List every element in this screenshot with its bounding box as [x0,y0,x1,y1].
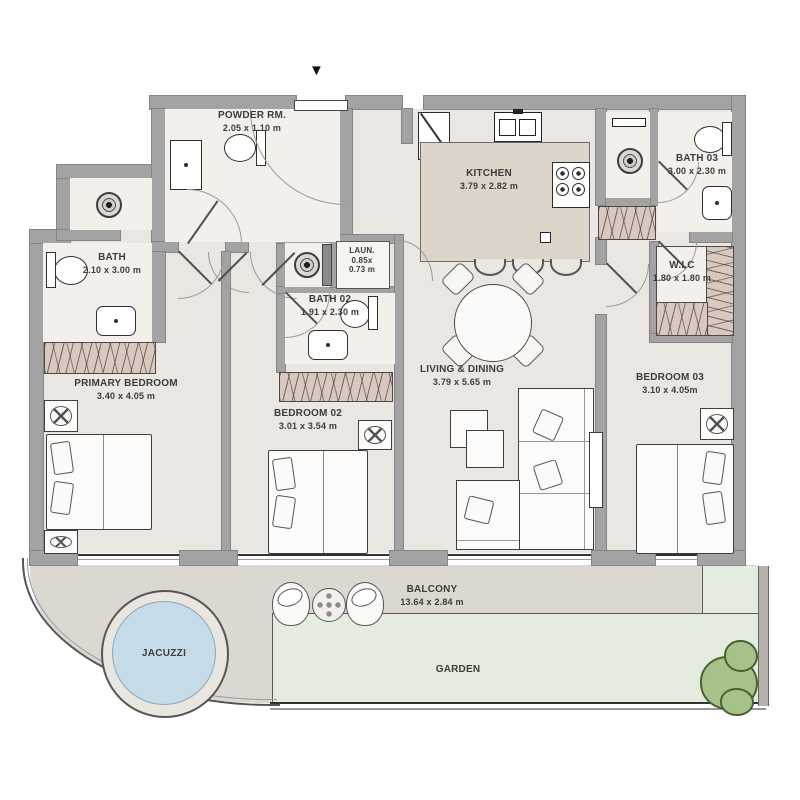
wall-divider-primary-bed02 [222,252,230,553]
label-powder-name: POWDER RM. [218,110,286,123]
outdoor-chair [272,582,310,626]
island-outlet [540,232,551,243]
label-wic-name: W.I.C [653,260,711,273]
sofa-back-line [584,389,585,549]
kitchen-sink-basin [499,119,516,136]
label-laundry: LAUN. 0.85x 0.73 m [349,246,375,275]
nightstand [44,400,78,432]
label-living: LIVING & DINING 3.79 x 5.65 m [420,364,504,388]
coffee-table [466,430,504,468]
toilet-bath03-tank [722,122,732,156]
powder-vanity [170,140,202,190]
label-garden-name: GARDEN [436,664,481,677]
wall-kitchen-left-stub [402,109,412,143]
chair-cushion [349,585,379,610]
wall-powder-left [152,109,165,252]
sofa-seam [519,441,593,442]
label-bath03: BATH 03 3.00 x 2.30 m [668,153,726,177]
chair-cushion [275,585,305,610]
wall-top-mid [346,96,402,109]
floor-plan: JACUZZI ▼ POWDER RM. 2.05 x 1.10 m KITCH… [0,0,800,800]
sink-bath02 [308,330,348,360]
garden-bush-top [724,640,758,672]
wardrobe-bedroom02 [279,372,393,402]
nightstand [358,420,392,450]
label-laundry-dims2: 0.73 m [349,265,375,275]
label-bath: BATH 2.10 x 3.00 m [83,252,141,276]
kitchen-faucet [513,109,523,114]
bed-seam [323,451,324,553]
wall-corridor-b [596,238,606,264]
wardrobe-wic-bottom [656,302,708,336]
label-kitchen-name: KITCHEN [460,168,518,181]
shower-drain-02 [294,252,320,278]
sofa-back-line [457,540,519,541]
toilet-primary-tank [46,252,56,288]
garden-bush-bottom [720,688,754,716]
bed-seam [677,445,678,553]
label-wic: W.I.C 1.80 x 1.80 m [653,260,711,284]
sink-dot [715,201,719,205]
label-balcony: BALCONY 13.64 x 2.84 m [400,584,463,608]
label-powder-dims: 2.05 x 1.10 m [218,123,286,134]
label-living-name: LIVING & DINING [420,364,504,377]
wall-left-upper-h [57,165,165,178]
label-powder: POWDER RM. 2.05 x 1.10 m [218,110,286,134]
jacuzzi-water: JACUZZI [112,601,216,705]
label-primary: PRIMARY BEDROOM 3.40 x 4.05 m [74,378,178,402]
burner [556,183,569,196]
label-bath03-dims: 3.00 x 2.30 m [668,166,726,177]
bed-pillow [50,441,74,475]
label-bedroom03-name: BEDROOM 03 [636,372,704,385]
wall-left-main [30,230,43,565]
entrance-arrow-icon: ▼ [309,62,324,79]
sofa-seam [519,493,593,494]
shower-drain-03 [617,148,643,174]
toilet-powder [224,134,256,162]
shower03-head [612,118,646,127]
wall-shower03-right [650,109,658,205]
kitchen-sink [494,112,542,142]
label-wic-dims: 1.80 x 1.80 m [653,273,711,284]
sink-bath03 [702,186,732,220]
toilet-bath02-tank [368,296,378,330]
outdoor-table [312,588,346,622]
outdoor-chair [346,582,384,626]
cross-circle-icon [706,414,728,434]
sink-dot [326,343,330,347]
stove [552,162,590,208]
label-bath-dims: 2.10 x 3.00 m [83,265,141,276]
label-kitchen-dims: 3.79 x 2.82 m [460,181,518,192]
bed-pillow [702,491,726,525]
label-bath-name: BATH [83,252,141,265]
wall-bath-right [152,252,165,342]
wall-corridor-a [596,109,606,205]
jacuzzi-label: JACUZZI [142,648,186,659]
garden-railing-right [758,566,769,706]
wall-shower03-bottom [606,198,650,206]
label-bath02-dims: 1.91 x 2.30 m [301,307,359,318]
label-balcony-dims: 13.64 x 2.84 m [400,597,463,608]
label-bedroom02-name: BEDROOM 02 [274,408,342,421]
nightstand [700,408,734,440]
label-bedroom02-dims: 3.01 x 3.54 m [274,421,342,432]
burner [572,167,585,180]
garden-area-step [702,566,759,613]
label-bedroom02: BEDROOM 02 3.01 x 3.54 m [274,408,342,432]
wardrobe-bedroom03 [598,206,656,240]
label-laundry-name: LAUN. [349,246,375,256]
garden-area [272,613,759,703]
label-laundry-dims1: 0.85x [349,256,375,266]
label-bedroom03-dims: 3.10 x 4.05m [636,385,704,396]
kitchen-sink-basin [519,119,536,136]
wardrobe-primary [44,342,156,374]
sink-primary [96,306,136,336]
burner [556,167,569,180]
label-balcony-name: BALCONY [400,584,463,597]
bed-seam [103,435,104,529]
label-garden: GARDEN [436,664,481,677]
wall-shower-bottom [57,230,120,240]
wall-top-right [424,96,745,109]
cross-circle-icon [50,406,72,426]
label-bath02: BATH 02 1.91 x 2.30 m [301,294,359,318]
cross-circle-icon [50,536,72,548]
label-kitchen: KITCHEN 3.79 x 2.82 m [460,168,518,192]
label-bedroom03: BEDROOM 03 3.10 x 4.05m [636,372,704,396]
garden-railing-bottom-2 [270,708,766,710]
wall-top-powder [150,96,296,109]
nightstand [44,530,78,554]
wall-hall-bottom-a [152,242,178,252]
label-primary-name: PRIMARY BEDROOM [74,378,178,391]
wall-bath03-bottom [690,232,732,242]
dining-table [454,284,532,362]
sink-dot [114,319,118,323]
pillar-2 [180,551,237,565]
bed-pillow [272,457,296,491]
label-living-dims: 3.79 x 5.65 m [420,377,504,388]
label-primary-dims: 3.40 x 4.05 m [74,391,178,402]
vanity-dot [184,163,188,167]
label-bath02-name: BATH 02 [301,294,359,307]
wall-divider-bed02-living [395,235,403,553]
garden-railing-bottom [270,702,766,704]
label-bath03-name: BATH 03 [668,153,726,166]
washer-door [322,244,332,286]
pillar-3 [390,551,447,565]
tv-unit [589,432,603,508]
shower-drain-primary [96,192,122,218]
cross-circle-icon [364,426,386,444]
burner [572,183,585,196]
